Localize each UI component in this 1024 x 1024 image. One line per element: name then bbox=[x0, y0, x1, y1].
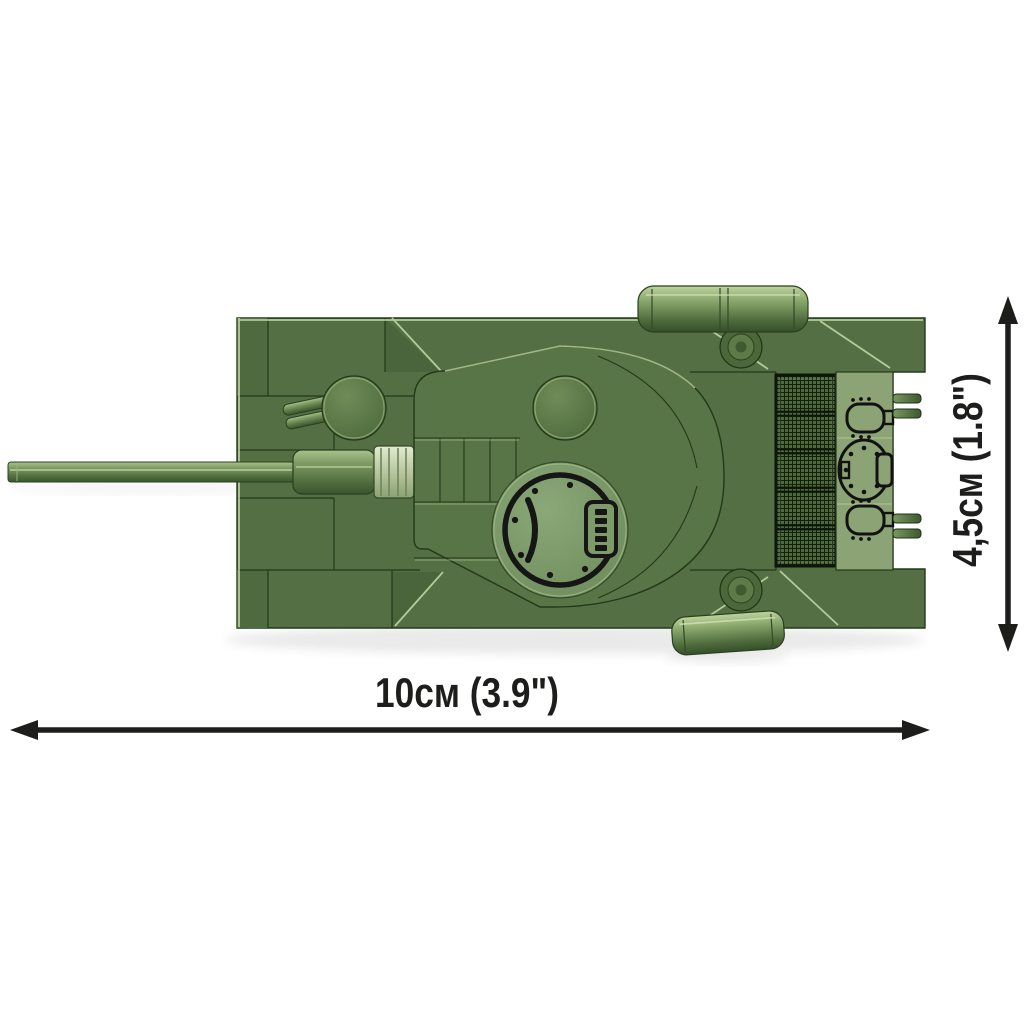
gun-mantlet bbox=[293, 450, 375, 494]
tow-pins bbox=[893, 394, 921, 538]
tank-illustration bbox=[0, 0, 1024, 1024]
driver-hatch bbox=[322, 376, 386, 440]
turret-front-disc bbox=[533, 376, 597, 440]
width-dimension-label: 10cм (3.9") bbox=[375, 669, 559, 717]
height-dimension-label: 4,5cм (1.8") bbox=[944, 373, 992, 567]
hatch-hinge bbox=[586, 502, 616, 556]
engine-grille bbox=[776, 375, 836, 566]
width-dimension-arrow bbox=[10, 720, 930, 740]
exhaust-plate bbox=[836, 372, 893, 570]
height-dimension-arrow bbox=[998, 296, 1018, 652]
turret-hatch bbox=[492, 462, 628, 598]
product-dimension-image: 10cм (3.9") 4,5cм (1.8") bbox=[0, 0, 1024, 1024]
recoil-collar bbox=[374, 446, 414, 498]
